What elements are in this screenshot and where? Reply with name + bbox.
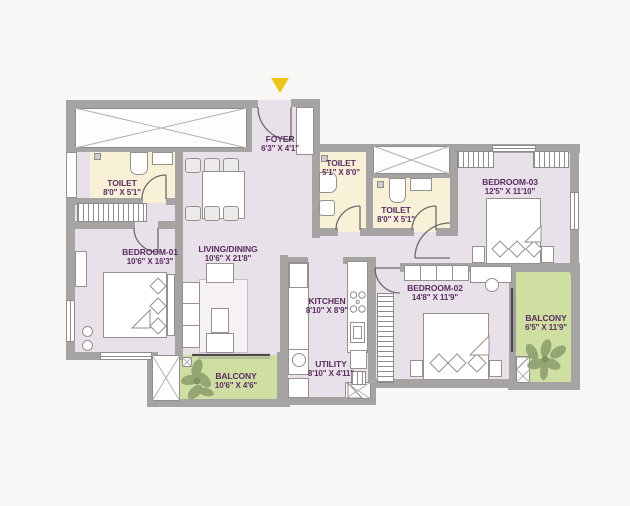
room-dims: 10'6" X 21'8" [183, 254, 273, 264]
sofa [182, 282, 200, 348]
room-label-utility: UTILITY 8'10" X 4'11" [286, 359, 376, 379]
bed-headboard [167, 274, 175, 336]
room-dims: 14'8" X 11'9" [390, 293, 480, 303]
room-label-toilet-1: TOILET 8'0" X 5'1" [77, 178, 167, 198]
vent [377, 181, 384, 188]
dining-chair [223, 206, 239, 221]
room-name: TOILET [296, 158, 386, 168]
wardrobe [457, 151, 494, 168]
wall [280, 255, 288, 405]
shaft-duct [75, 108, 247, 148]
room-name: BALCONY [191, 371, 281, 381]
room-label-bedroom-01: BEDROOM-01 10'6" X 16'3" [105, 247, 195, 267]
wall [166, 198, 178, 205]
room-label-kitchen: KITCHEN 8'10" X 8'9" [282, 296, 372, 316]
window [492, 145, 536, 152]
desk-chair [485, 278, 499, 292]
room-label-toilet-3: TOILET 8'0" X 5'1" [351, 205, 441, 225]
bed [423, 313, 489, 380]
side-table [489, 360, 502, 377]
room-dims: 8'10" X 8'9" [282, 306, 372, 316]
shaft-duct [152, 355, 180, 401]
wardrobe [533, 151, 569, 168]
bed [103, 272, 167, 338]
room-label-foyer: FOYER 6'3" X 4'1" [235, 134, 325, 154]
stool [82, 340, 93, 351]
washbasin [319, 200, 335, 216]
kitchen-sink-bowl [353, 326, 362, 339]
room-name: TOILET [351, 205, 441, 215]
wall [360, 228, 414, 236]
entry-arrow-icon [271, 78, 289, 93]
room-label-bedroom-03: BEDROOM-03 12'5" X 11'10" [465, 177, 555, 197]
fridge [289, 263, 308, 288]
room-dims: 8'10" X 4'11" [286, 369, 376, 379]
room-dims: 6'3" X 4'1" [235, 144, 325, 154]
room-name: BEDROOM-01 [105, 247, 195, 257]
dining-chair [204, 206, 220, 221]
room-name: KITCHEN [282, 296, 372, 306]
room-dims: 12'5" X 11'10" [465, 187, 555, 197]
wardrobe [404, 265, 469, 281]
room-name: LIVING/DINING [183, 244, 273, 254]
wardrobe [377, 293, 394, 383]
armchair [206, 263, 234, 283]
room-dims: 5'1" X 8'0" [296, 168, 386, 178]
room-dims: 6'5" X 11'9" [501, 323, 591, 333]
stool [82, 326, 93, 337]
room-dims: 10'6" X 4'6" [191, 381, 281, 391]
window [100, 352, 152, 360]
window [570, 192, 579, 230]
toilet-wc [130, 152, 148, 175]
bed [486, 198, 541, 264]
vent [94, 153, 101, 160]
room-name: BEDROOM-03 [465, 177, 555, 187]
room-label-living-dining: LIVING/DINING 10'6" X 21'8" [183, 244, 273, 264]
side-table [410, 360, 423, 377]
shaft-duct [182, 357, 192, 367]
dining-chair [185, 206, 201, 221]
utility-cabinet [288, 378, 309, 398]
armchair [206, 333, 234, 353]
room-label-balcony-2: BALCONY 6'5" X 11'9" [501, 313, 591, 333]
wardrobe [77, 203, 147, 222]
toilet-wc [389, 178, 406, 203]
window [66, 300, 75, 342]
room-dims: 8'0" X 5'1" [351, 215, 441, 225]
dresser [75, 251, 87, 287]
room-name: BALCONY [501, 313, 591, 323]
side-table [541, 246, 554, 263]
room-label-bedroom-02: BEDROOM-02 14'8" X 11'9" [390, 283, 480, 303]
wall [508, 382, 580, 390]
room-name: UTILITY [286, 359, 376, 369]
room-label-balcony-1: BALCONY 10'6" X 4'6" [191, 371, 281, 391]
room-name: BEDROOM-02 [390, 283, 480, 293]
side-table [472, 246, 485, 263]
washbasin [152, 152, 173, 165]
shaft-duct [516, 356, 530, 383]
room-label-toilet-2: TOILET 5'1" X 8'0" [296, 158, 386, 178]
wall [175, 145, 183, 230]
wall [66, 221, 135, 229]
washbasin [410, 178, 432, 191]
wall [66, 100, 258, 108]
wall [312, 228, 338, 236]
floor-plan: FOYER 6'3" X 4'1" TOILET 8'0" X 5'1" TOI… [0, 0, 630, 506]
room-name: TOILET [77, 178, 167, 188]
coffee-table [211, 308, 229, 333]
room-dims: 10'6" X 16'3" [105, 257, 195, 267]
room-name: FOYER [235, 134, 325, 144]
dining-chair [185, 158, 201, 173]
room-dims: 8'0" X 5'1" [77, 188, 167, 198]
shelf-niche [66, 152, 77, 198]
